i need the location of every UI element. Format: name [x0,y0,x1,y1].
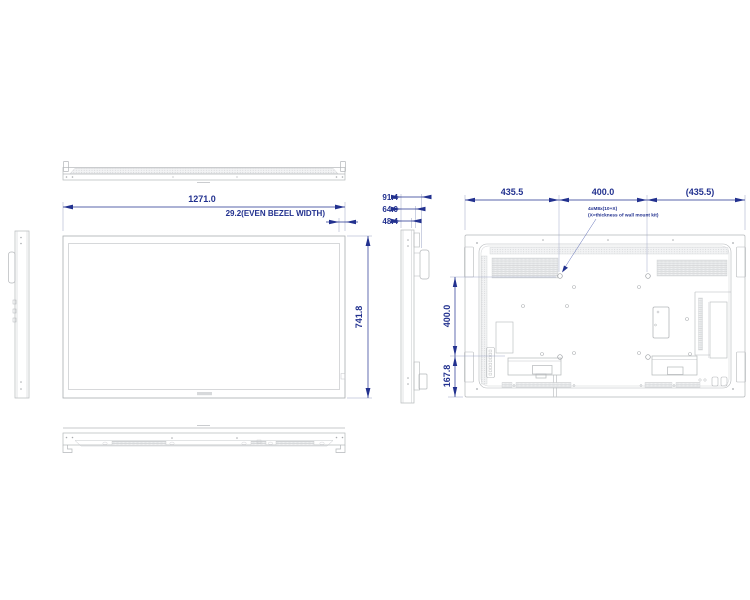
note-leader-line [565,219,597,268]
top-vent-band [70,168,338,174]
depth-total-label: 91.4 [382,193,398,202]
display-dimension-drawing: 1271.0 29.2(EVEN BEZEL WIDTH) 741.8 91.4… [0,0,750,600]
dim-side-depths: 91.4 64.0 48.4 [382,193,431,248]
ac-inlet-switch [699,377,727,386]
right-side-foot [419,374,427,389]
mount-center-label: 400.0 [592,187,615,197]
bottom-channel-details [103,440,324,445]
rear-io-box-right [652,356,697,375]
front-logo [197,392,212,395]
right-side-screws [407,239,409,385]
left-side-handle [9,252,16,283]
top-view [63,162,346,183]
rear-power-region [695,292,731,358]
rear-side-port-strip [487,348,495,378]
vesa-holes [558,274,651,360]
note-line1: 4xM8x(10+X) [588,206,618,212]
dim-bezel-width: 29.2(EVEN BEZEL WIDTH) [226,209,358,232]
bottom-left-foot [63,445,72,453]
mount-vertical-label: 400.0 [442,305,452,328]
rear-top-vent [490,248,728,255]
front-ir-sensor [341,374,345,380]
front-width-label: 1271.0 [188,194,216,204]
top-view-left-tab [64,162,69,172]
mount-right-label: (435.5) [686,187,715,197]
front-view [63,236,345,398]
rear-speaker-strips [502,383,700,388]
bottom-view [63,426,345,453]
technical-drawing-page: 1271.0 29.2(EVEN BEZEL WIDTH) 741.8 91.4… [0,0,750,600]
dim-front-height: 741.8 [347,236,372,398]
left-side-screws [20,237,22,390]
depth-mid-label: 64.0 [382,205,398,214]
right-side-top-bracket [414,233,420,247]
front-screen-area [69,244,340,390]
mount-left-label: 435.5 [501,187,524,197]
mount-bottom-label: 167.8 [442,365,452,388]
left-side-view [9,231,30,398]
bottom-view-screws [66,437,344,439]
left-side-ports [13,300,16,322]
front-outer-frame [63,236,345,398]
rear-label-left [492,258,558,278]
bottom-right-foot [336,445,345,453]
rear-left-vent [482,256,488,384]
rear-screw-holes [522,286,692,356]
right-side-view [401,230,429,403]
note-line2: (X=thickness of wall mount kit) [588,213,659,219]
rear-view [465,235,746,397]
dim-rear-vertical: 400.0 167.8 [442,277,556,397]
depth-body-label: 48.4 [382,217,398,226]
rear-io-box-left [508,358,561,378]
note-leader-arrow [562,266,568,273]
rear-module-box [653,307,669,338]
rear-left-plate [496,322,513,353]
wall-mount-note: 4xM8x(10+X) (X=thickness of wall mount k… [562,206,659,273]
front-height-label: 741.8 [354,306,364,329]
top-view-screws [66,176,344,178]
right-side-handle [420,250,429,279]
rear-label-right [657,260,727,276]
bezel-width-label: 29.2(EVEN BEZEL WIDTH) [226,209,326,218]
